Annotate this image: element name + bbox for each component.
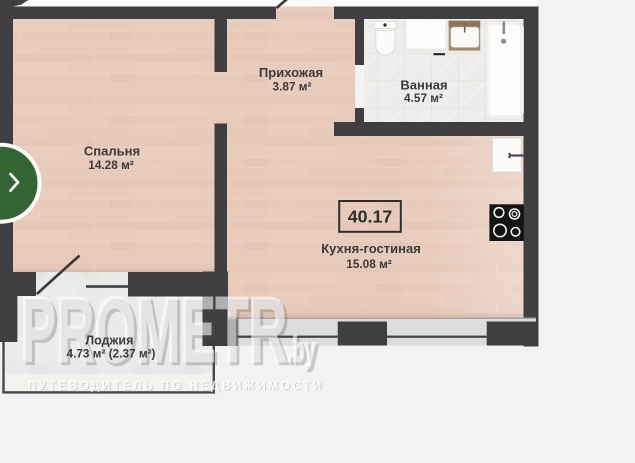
svg-text:Прихожая: Прихожая	[259, 65, 323, 80]
svg-text:4.57 м²: 4.57 м²	[404, 91, 443, 105]
svg-text:ПУТЕВОДИТЕЛЬ ПО НЕДВИЖИМОСТИ: ПУТЕВОДИТЕЛЬ ПО НЕДВИЖИМОСТИ	[28, 379, 324, 393]
svg-text:Лоджия: Лоджия	[85, 334, 133, 348]
svg-text:14.28 м²: 14.28 м²	[88, 158, 134, 172]
svg-text:40.17: 40.17	[348, 207, 393, 227]
svg-text:15.08 м²: 15.08 м²	[346, 257, 392, 271]
svg-text:Спальня: Спальня	[84, 144, 140, 159]
svg-text:Кухня-гостиная: Кухня-гостиная	[321, 241, 421, 256]
svg-text:3.87 м²: 3.87 м²	[273, 80, 312, 94]
svg-text:PROMETR.by: PROMETR.by	[20, 278, 316, 381]
svg-text:4.73 м² (2.37 м²): 4.73 м² (2.37 м²)	[67, 347, 156, 361]
